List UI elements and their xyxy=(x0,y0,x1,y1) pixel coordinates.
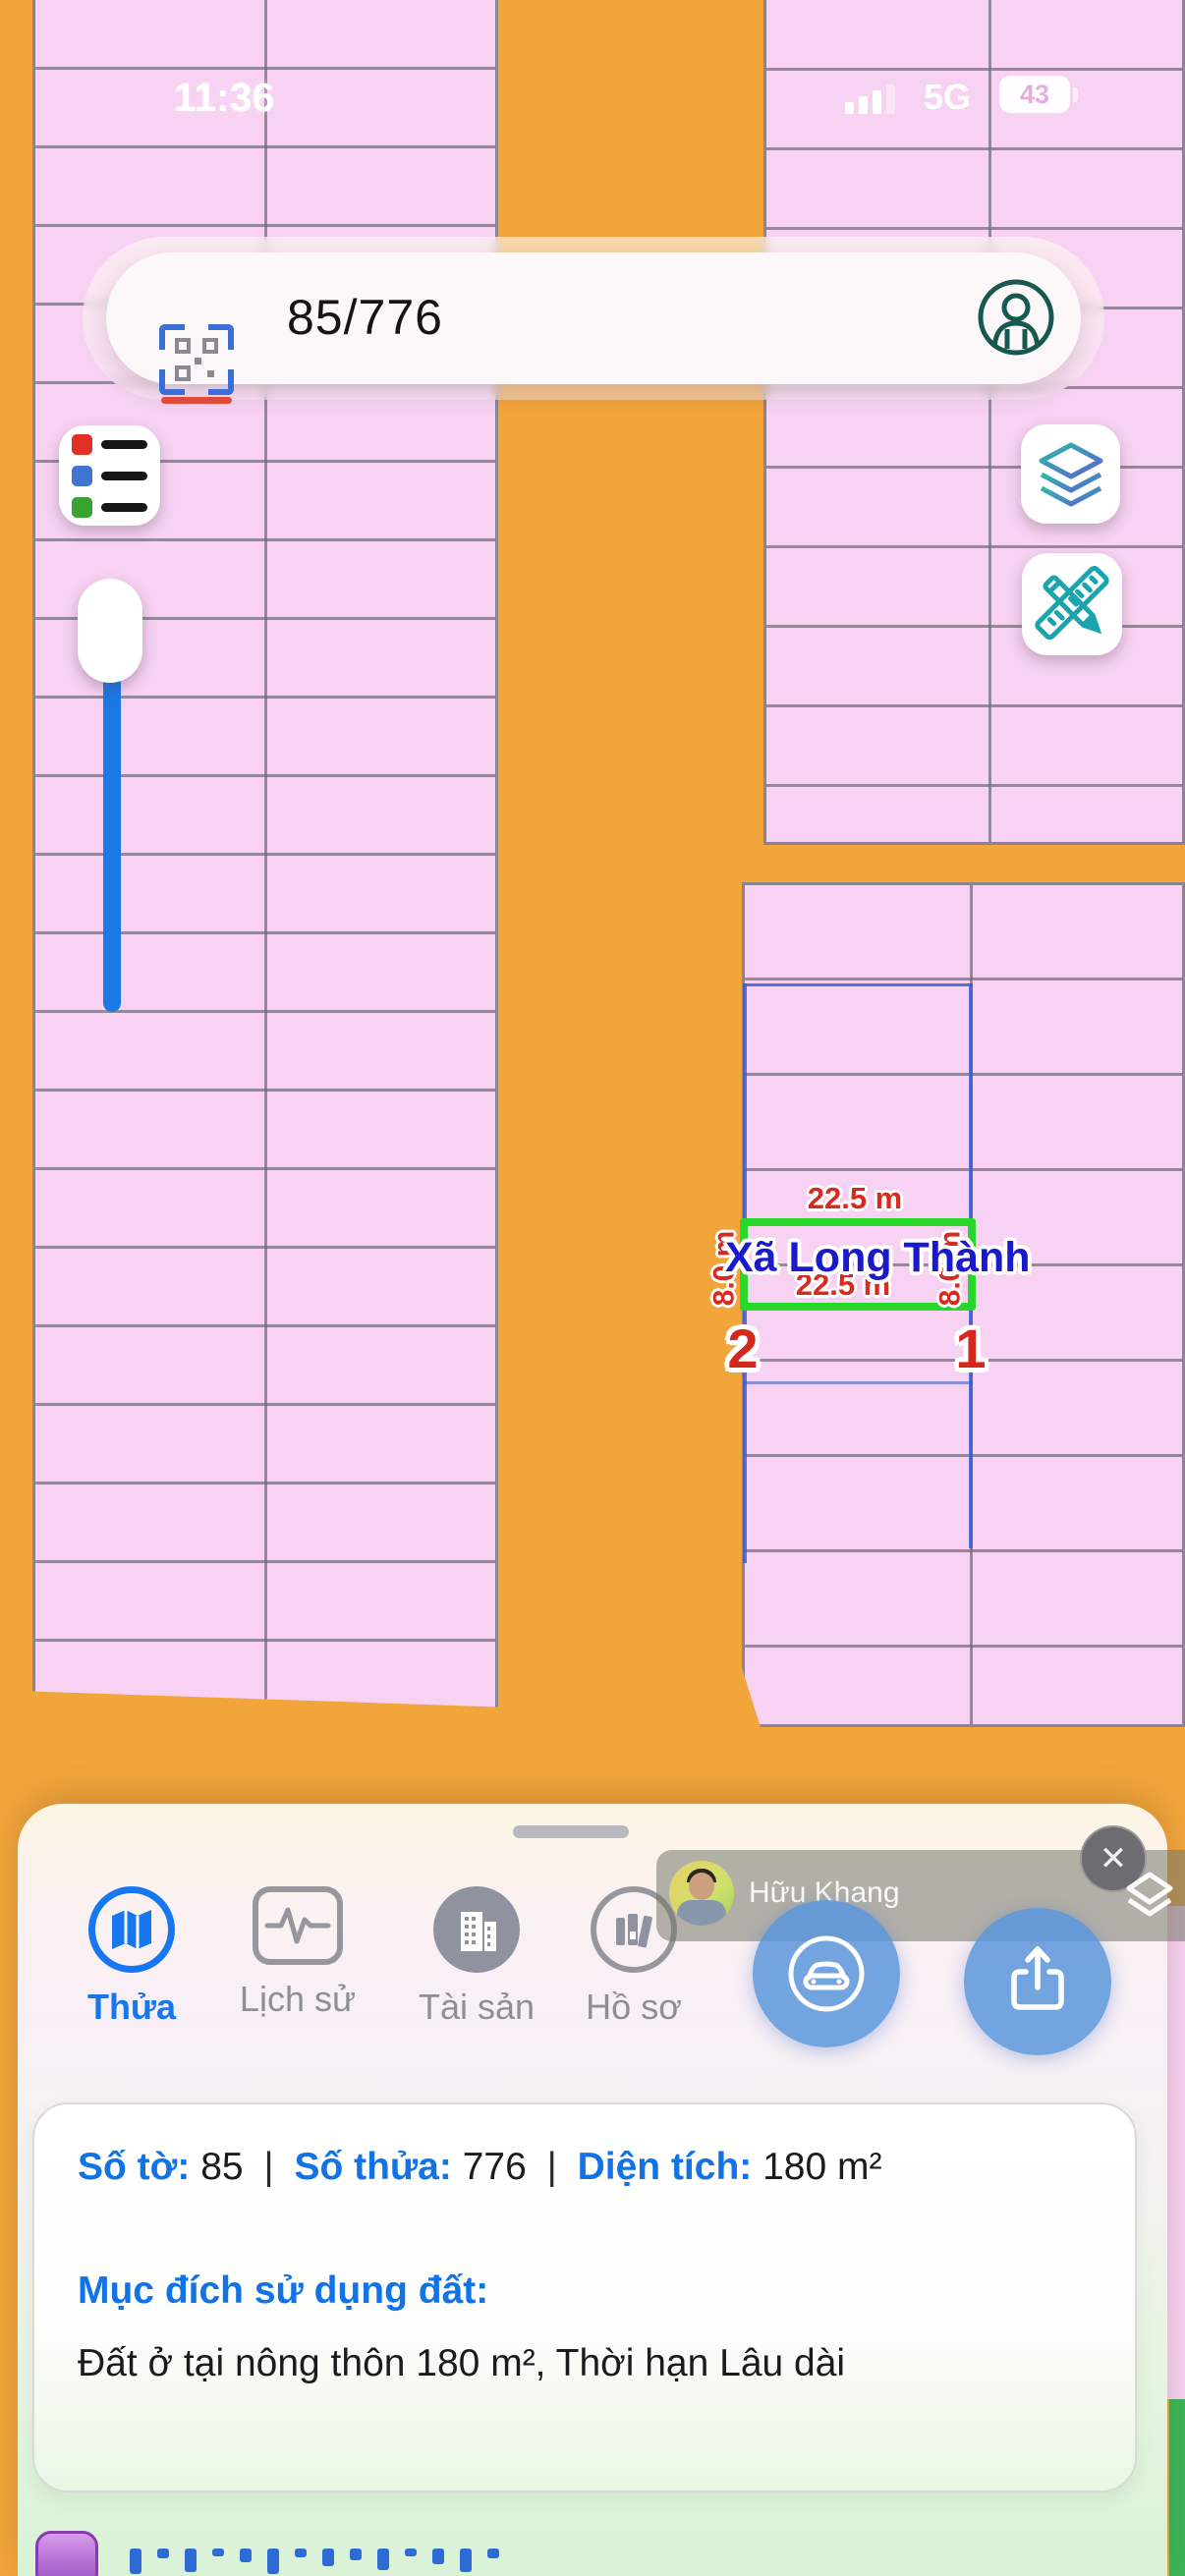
vertex-marker-2[interactable]: 2 xyxy=(711,1316,774,1380)
status-time: 11:36 xyxy=(145,75,303,121)
measure-button[interactable] xyxy=(1022,553,1122,655)
search-field[interactable] xyxy=(106,252,1081,384)
share-button[interactable] xyxy=(964,1908,1111,2055)
user-avatar[interactable] xyxy=(669,1861,734,1926)
tab-lich-su-label: Lịch sử xyxy=(240,1979,356,2020)
parcel-number-value: 776 xyxy=(463,2146,527,2188)
tab-thua-label: Thửa xyxy=(87,1987,176,2028)
tab-tai-san[interactable]: Tài sản xyxy=(390,1886,563,2028)
dimension-top: 22.5 m xyxy=(757,1181,953,1216)
tab-lich-su[interactable]: Lịch sử xyxy=(211,1886,384,2020)
tab-ho-so-label: Hồ sơ xyxy=(586,1987,682,2028)
tab-thua[interactable]: Thửa xyxy=(45,1886,218,2028)
sheet-number-label: Số tờ: xyxy=(78,2146,190,2188)
area-value: 180 m² xyxy=(762,2146,881,2188)
land-purpose-value: Đất ở tại nông thôn 180 m², Thời hạn Lâu… xyxy=(78,2342,845,2385)
app-screen: 22.5 m 22.5 m 8.0 m 8.0 m Xã Long Thành … xyxy=(0,0,1185,2576)
stacked-chevrons-icon xyxy=(1121,1865,1178,1920)
car-icon xyxy=(785,1932,868,2015)
parcel-commune-label: Xã Long Thành xyxy=(725,1234,985,1282)
tab-tai-san-label: Tài sản xyxy=(419,1987,535,2028)
qr-scan-icon[interactable] xyxy=(159,320,234,395)
sheet-number-value: 85 xyxy=(200,2146,243,2188)
peeking-green-button xyxy=(1169,2399,1185,2576)
signal-bars-icon xyxy=(845,84,895,114)
parcel-info-card: Số tờ: 85 | Số thửa: 776 | Diện tích: 18… xyxy=(32,2102,1137,2492)
battery-percent: 43 xyxy=(1020,80,1049,110)
zoom-slider-track[interactable] xyxy=(103,631,121,1012)
sheet-drag-handle[interactable] xyxy=(513,1825,629,1838)
buildings-icon xyxy=(433,1886,520,1973)
parcel-summary-line: Số tờ: 85 | Số thửa: 776 | Diện tích: 18… xyxy=(78,2146,882,2189)
network-type: 5G xyxy=(924,77,971,118)
share-icon xyxy=(996,1940,1079,2023)
survey-boundary-top xyxy=(745,983,973,986)
area-label: Diện tích: xyxy=(578,2146,753,2188)
vertex-marker-1[interactable]: 1 xyxy=(939,1316,1002,1380)
street-view-button[interactable] xyxy=(753,1900,900,2047)
zoom-slider-thumb[interactable] xyxy=(78,579,142,683)
history-pulse-icon xyxy=(253,1886,343,1965)
parcel-block-top-right xyxy=(763,0,1185,845)
legend-icon xyxy=(72,434,147,518)
partial-text-marks xyxy=(130,2548,499,2574)
layers-button[interactable] xyxy=(1021,424,1120,524)
layers-icon xyxy=(1034,437,1108,512)
measure-icon xyxy=(1034,566,1110,643)
survey-boundary-mid xyxy=(745,1381,973,1384)
next-section-icon xyxy=(35,2531,98,2576)
account-icon[interactable] xyxy=(977,278,1055,357)
parcel-number-label: Số thửa: xyxy=(294,2146,451,2188)
map-sliver-right xyxy=(1167,1906,1185,2399)
legend-button[interactable] xyxy=(59,425,160,526)
map-icon xyxy=(88,1886,175,1973)
land-purpose-label: Mục đích sử dụng đất: xyxy=(78,2269,488,2313)
search-input[interactable]: 85/776 xyxy=(287,289,443,346)
battery-icon: 43 xyxy=(999,76,1070,113)
